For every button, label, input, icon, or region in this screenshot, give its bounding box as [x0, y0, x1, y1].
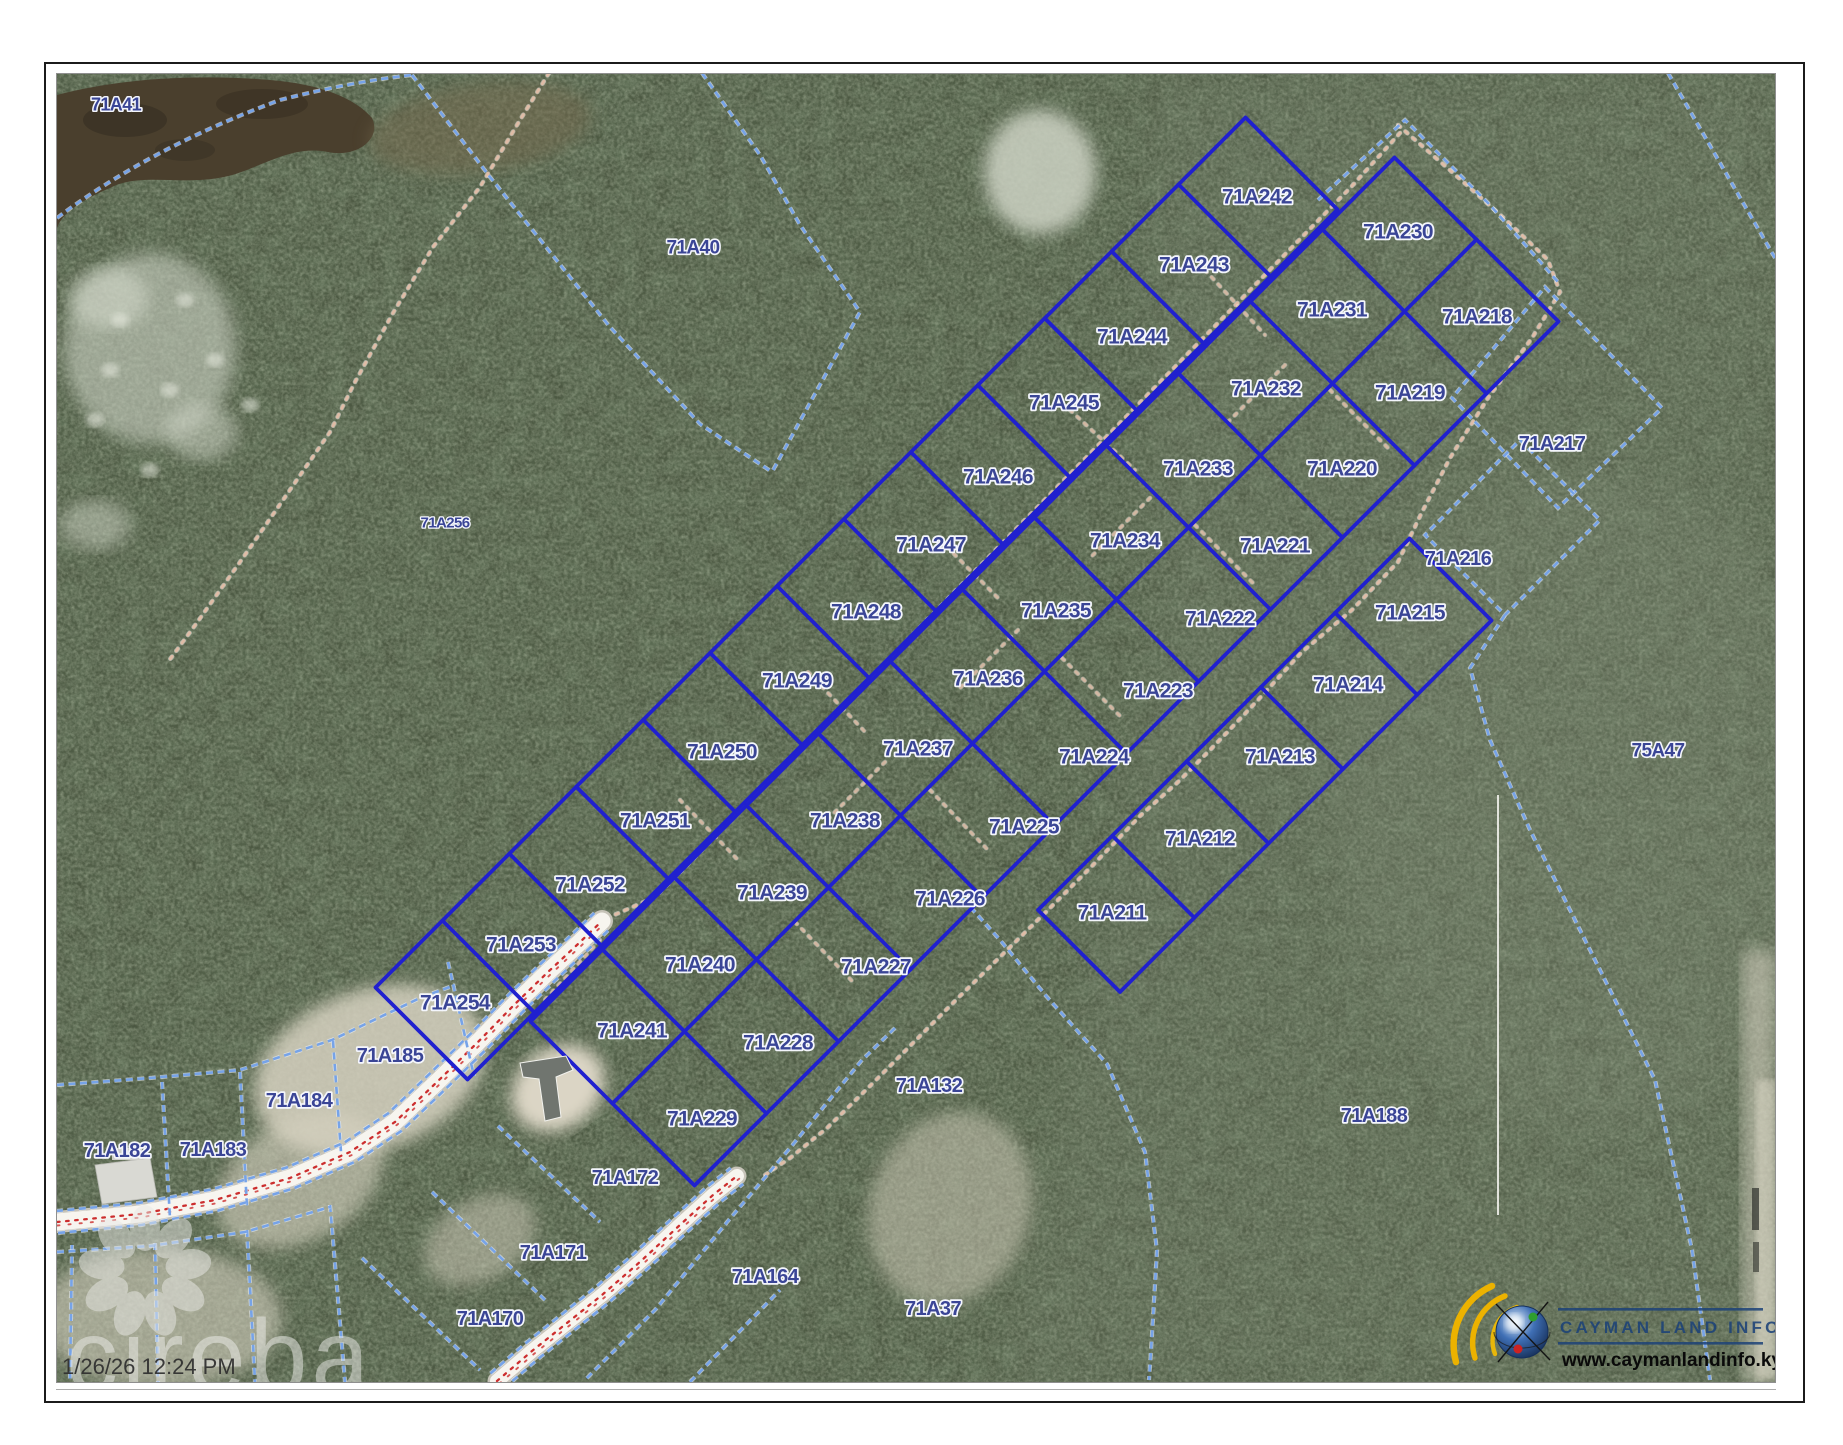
logo-rule-top — [1558, 1308, 1763, 1311]
parcel-label-71A37: 71A37 — [905, 1298, 961, 1320]
parcel-label-71A216: 71A216 — [1425, 548, 1492, 570]
parcel-label-71A249: 71A249 — [762, 669, 832, 692]
parcel-label-71A230: 71A230 — [1363, 220, 1433, 243]
parcel-label-71A221: 71A221 — [1240, 534, 1311, 557]
parcel-label-71A41: 71A41 — [91, 94, 142, 114]
parcel-label-71A242: 71A242 — [1222, 185, 1292, 208]
parcel-label-71A171: 71A171 — [520, 1242, 587, 1264]
parcel-label-71A256: 71A256 — [421, 514, 470, 531]
parcel-label-71A40: 71A40 — [667, 238, 720, 259]
parcel-label-71A229: 71A229 — [667, 1107, 737, 1130]
parcel-label-71A250: 71A250 — [687, 740, 757, 763]
parcel-label-71A220: 71A220 — [1307, 457, 1377, 480]
parcel-label-71A237: 71A237 — [883, 737, 953, 760]
parcel-label-71A240: 71A240 — [665, 953, 735, 976]
parcel-label-71A235: 71A235 — [1021, 599, 1092, 622]
parcel-label-71A215: 71A215 — [1375, 601, 1446, 624]
parcel-label-71A183: 71A183 — [180, 1139, 247, 1161]
parcel-label-71A252: 71A252 — [555, 873, 625, 896]
parcel-label-71A248: 71A248 — [831, 600, 902, 623]
parcel-label-71A227: 71A227 — [841, 955, 911, 978]
parcel-label-71A217: 71A217 — [1519, 433, 1586, 455]
parcel-label-71A213: 71A213 — [1245, 745, 1315, 768]
parcel-label-71A224: 71A224 — [1059, 745, 1130, 768]
parcel-label-71A164: 71A164 — [732, 1266, 800, 1288]
parcel-label-71A182: 71A182 — [84, 1140, 151, 1162]
parcel-label-71A233: 71A233 — [1163, 457, 1233, 480]
parcel-label-71A253: 71A253 — [486, 933, 556, 956]
parcel-label-71A172: 71A172 — [592, 1167, 659, 1189]
parcel-label-75A47: 75A47 — [1632, 741, 1685, 762]
parcel-label-71A211: 71A211 — [1078, 901, 1148, 924]
parcel-label-71A247: 71A247 — [896, 533, 966, 556]
parcel-label-71A236: 71A236 — [953, 667, 1023, 690]
parcel-label-71A223: 71A223 — [1123, 679, 1193, 702]
frame-inner-rule — [56, 1389, 1776, 1390]
parcel-label-71A226: 71A226 — [915, 887, 985, 910]
parcel-label-71A222: 71A222 — [1185, 607, 1255, 630]
parcel-label-71A132: 71A132 — [896, 1075, 963, 1097]
parcel-label-71A185: 71A185 — [357, 1045, 424, 1067]
parcel-label-71A219: 71A219 — [1375, 381, 1445, 404]
parcel-label-71A239: 71A239 — [737, 881, 807, 904]
parcel-label-71A212: 71A212 — [1165, 827, 1235, 850]
parcel-label-71A234: 71A234 — [1090, 529, 1161, 552]
parcel-label-71A214: 71A214 — [1313, 673, 1384, 696]
map-canvas[interactable]: cireba 71A4171A4071A25675A4771A24271A243… — [56, 73, 1776, 1383]
parcel-label-71A228: 71A228 — [743, 1031, 814, 1054]
timestamp-text: 1/26/26 12:24 PM — [62, 1354, 236, 1379]
parcel-label-71A188: 71A188 — [1341, 1105, 1408, 1127]
map-export-page: cireba 71A4171A4071A25675A4771A24271A243… — [0, 0, 1843, 1445]
parcel-label-71A231: 71A231 — [1297, 298, 1368, 321]
parcel-label-71A238: 71A238 — [810, 809, 881, 832]
parcel-label-71A251: 71A251 — [620, 809, 691, 832]
logo-title: CAYMAN LAND INFO — [1560, 1318, 1776, 1337]
parcel-label-71A241: 71A241 — [597, 1019, 668, 1042]
parcel-label-71A170: 71A170 — [457, 1308, 524, 1330]
parcel-label-71A232: 71A232 — [1231, 377, 1301, 400]
parcel-label-71A246: 71A246 — [963, 465, 1033, 488]
parcel-label-71A225: 71A225 — [989, 815, 1060, 838]
parcel-label-71A184: 71A184 — [266, 1090, 334, 1112]
parcel-label-71A254: 71A254 — [420, 991, 491, 1014]
parcel-label-71A245: 71A245 — [1029, 391, 1100, 414]
parcel-label-71A244: 71A244 — [1097, 325, 1168, 348]
parcel-label-71A218: 71A218 — [1442, 305, 1513, 328]
logo-url: www.caymanlandinfo.ky — [1561, 1350, 1776, 1371]
parcel-label-71A243: 71A243 — [1159, 253, 1229, 276]
logo-rule-bottom — [1558, 1342, 1763, 1345]
